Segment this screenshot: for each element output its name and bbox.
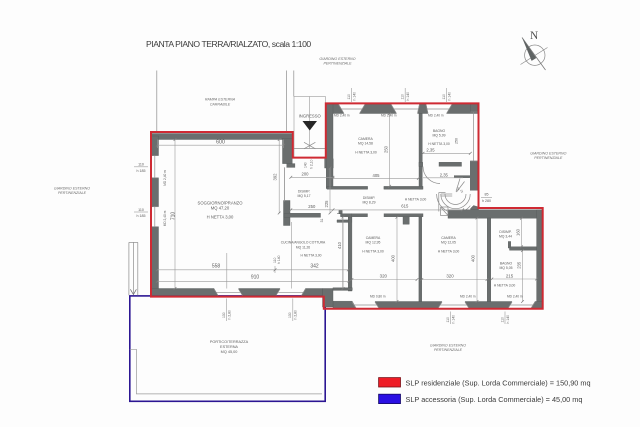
svg-text:235: 235 bbox=[516, 261, 521, 269]
svg-text:110: 110 bbox=[500, 317, 504, 323]
svg-text:MD 2,40 m: MD 2,40 m bbox=[334, 114, 350, 118]
svg-text:140: 140 bbox=[304, 162, 308, 168]
svg-text:MQ 8,29: MQ 8,29 bbox=[362, 201, 375, 205]
svg-text:2,35: 2,35 bbox=[426, 148, 435, 153]
svg-text:MD 2,40 m: MD 2,40 m bbox=[428, 114, 444, 118]
svg-text:MQ 12,05: MQ 12,05 bbox=[441, 241, 456, 245]
svg-text:250: 250 bbox=[455, 138, 459, 144]
svg-text:BAGNO: BAGNO bbox=[433, 129, 446, 133]
svg-text:GIARDINO ESTERNO: GIARDINO ESTERNO bbox=[319, 57, 355, 61]
svg-text:DISIMP.: DISIMP. bbox=[298, 190, 310, 194]
svg-text:GIARDINO ESTERNO: GIARDINO ESTERNO bbox=[54, 187, 90, 191]
svg-text:MQ 45,00: MQ 45,00 bbox=[221, 350, 238, 354]
svg-text:615: 615 bbox=[401, 204, 409, 209]
svg-text:MD 0,80 m: MD 0,80 m bbox=[370, 295, 386, 299]
svg-text:710: 710 bbox=[171, 212, 177, 221]
svg-text:MD 2,40 m: MD 2,40 m bbox=[163, 170, 167, 186]
svg-text:110: 110 bbox=[401, 94, 405, 100]
svg-text:400: 400 bbox=[391, 254, 396, 262]
svg-text:H NETTA 3,00: H NETTA 3,00 bbox=[355, 151, 377, 155]
svg-text:410: 410 bbox=[337, 241, 342, 249]
svg-text:h 140: h 140 bbox=[277, 255, 281, 264]
svg-text:342: 342 bbox=[310, 264, 319, 270]
svg-text:CAMERA: CAMERA bbox=[366, 236, 381, 240]
svg-text:h 2,10: h 2,10 bbox=[310, 159, 314, 169]
svg-text:CUCINA/ANGOLO COTTURA: CUCINA/ANGOLO COTTURA bbox=[281, 241, 326, 245]
svg-text:PERTINENZIALE: PERTINENZIALE bbox=[534, 156, 563, 160]
svg-text:DISIMP.: DISIMP. bbox=[363, 196, 375, 200]
svg-text:h 140: h 140 bbox=[451, 315, 455, 324]
svg-text:PIANTA PIANO TERRA/RIALZATO, s: PIANTA PIANO TERRA/RIALZATO, scala 1:100 bbox=[146, 39, 311, 49]
svg-text:RAMPA ESTERNA: RAMPA ESTERNA bbox=[205, 98, 236, 102]
svg-text:BAGNO: BAGNO bbox=[500, 262, 513, 266]
svg-text:SLP residenziale (Sup. Lorda C: SLP residenziale (Sup. Lorda Commerciale… bbox=[406, 378, 591, 387]
svg-text:600: 600 bbox=[216, 140, 225, 146]
svg-text:MQ 12,95: MQ 12,95 bbox=[366, 241, 381, 245]
svg-text:H NETTA 3,00: H NETTA 3,00 bbox=[405, 198, 427, 202]
svg-text:GIARDINO ESTERNO: GIARDINO ESTERNO bbox=[530, 152, 566, 156]
svg-text:910: 910 bbox=[251, 275, 260, 281]
svg-text:N: N bbox=[530, 30, 538, 42]
svg-text:110: 110 bbox=[442, 94, 446, 100]
svg-text:110: 110 bbox=[273, 257, 277, 263]
svg-text:225: 225 bbox=[324, 200, 329, 208]
svg-text:2,35: 2,35 bbox=[440, 172, 449, 177]
svg-text:H NETTA 3,00: H NETTA 3,00 bbox=[207, 215, 234, 220]
svg-text:405: 405 bbox=[373, 173, 381, 178]
svg-text:MQ 14,58: MQ 14,58 bbox=[358, 142, 373, 146]
svg-text:MQ 5,99: MQ 5,99 bbox=[432, 134, 445, 138]
svg-text:CAMERA: CAMERA bbox=[441, 236, 456, 240]
svg-text:SLP accessoria (Sup. Lorda Com: SLP accessoria (Sup. Lorda Commerciale) … bbox=[406, 395, 583, 404]
svg-text:215: 215 bbox=[506, 273, 514, 278]
svg-text:392: 392 bbox=[272, 173, 277, 181]
svg-text:PERTINENZIALE: PERTINENZIALE bbox=[58, 191, 87, 195]
svg-text:PERTINENZIALE: PERTINENZIALE bbox=[323, 62, 352, 66]
svg-text:MQ 47,20: MQ 47,20 bbox=[211, 206, 230, 211]
svg-text:MQ 3,44: MQ 3,44 bbox=[499, 235, 512, 239]
svg-text:110: 110 bbox=[347, 94, 351, 100]
svg-text:85: 85 bbox=[485, 193, 489, 197]
svg-text:MQ 5,05: MQ 5,05 bbox=[499, 266, 512, 270]
svg-text:320: 320 bbox=[380, 274, 388, 279]
svg-text:250: 250 bbox=[308, 204, 316, 209]
svg-text:MQ 11,26: MQ 11,26 bbox=[296, 246, 310, 250]
svg-text:558: 558 bbox=[212, 264, 221, 270]
svg-text:110: 110 bbox=[446, 317, 450, 323]
svg-text:h 140: h 140 bbox=[406, 92, 410, 101]
svg-text:INGRESSO: INGRESSO bbox=[299, 114, 322, 119]
svg-text:CARRABILE: CARRABILE bbox=[210, 103, 231, 107]
svg-text:250: 250 bbox=[383, 145, 388, 153]
svg-text:h 140: h 140 bbox=[447, 92, 451, 101]
svg-text:H NETTA 3,00: H NETTA 3,00 bbox=[494, 284, 516, 288]
svg-text:H NETTA 3,00: H NETTA 3,00 bbox=[428, 142, 450, 146]
svg-text:GIARDINO ESTERNO: GIARDINO ESTERNO bbox=[430, 344, 466, 348]
svg-text:h 2,80: h 2,80 bbox=[294, 310, 298, 320]
svg-text:h 2,80: h 2,80 bbox=[227, 310, 231, 320]
svg-text:320: 320 bbox=[446, 274, 454, 279]
svg-text:MD 2,40 m: MD 2,40 m bbox=[507, 295, 523, 299]
svg-text:31: 31 bbox=[320, 219, 324, 223]
svg-text:MQ 5,17: MQ 5,17 bbox=[297, 194, 310, 198]
svg-text:PERTINENZIALE: PERTINENZIALE bbox=[434, 348, 463, 352]
svg-text:h 280: h 280 bbox=[482, 199, 491, 203]
svg-text:h 185: h 185 bbox=[137, 169, 146, 173]
svg-text:110: 110 bbox=[138, 208, 144, 212]
svg-text:130: 130 bbox=[222, 312, 226, 318]
svg-text:H NETTA 3,00: H NETTA 3,00 bbox=[438, 250, 460, 254]
svg-text:110: 110 bbox=[138, 163, 144, 167]
svg-text:PORTICO/TERRAZZA: PORTICO/TERRAZZA bbox=[210, 340, 249, 344]
svg-text:MD 2,40 m: MD 2,40 m bbox=[163, 210, 167, 226]
svg-text:CAMERA: CAMERA bbox=[358, 137, 373, 141]
svg-text:400: 400 bbox=[471, 254, 476, 262]
svg-text:200: 200 bbox=[302, 171, 310, 176]
svg-text:h 140: h 140 bbox=[506, 315, 510, 324]
svg-text:H NETTA 3,00: H NETTA 3,00 bbox=[362, 250, 384, 254]
svg-text:130: 130 bbox=[288, 312, 292, 318]
svg-text:ESTERNA: ESTERNA bbox=[220, 345, 238, 349]
svg-text:DISIMP.: DISIMP. bbox=[499, 230, 511, 234]
svg-text:h 140: h 140 bbox=[353, 92, 357, 101]
svg-text:h 185: h 185 bbox=[137, 214, 146, 218]
svg-text:160: 160 bbox=[515, 228, 520, 236]
svg-text:MD 2,40 m: MD 2,40 m bbox=[460, 295, 476, 299]
svg-text:H NETTA 3,00: H NETTA 3,00 bbox=[300, 254, 321, 258]
